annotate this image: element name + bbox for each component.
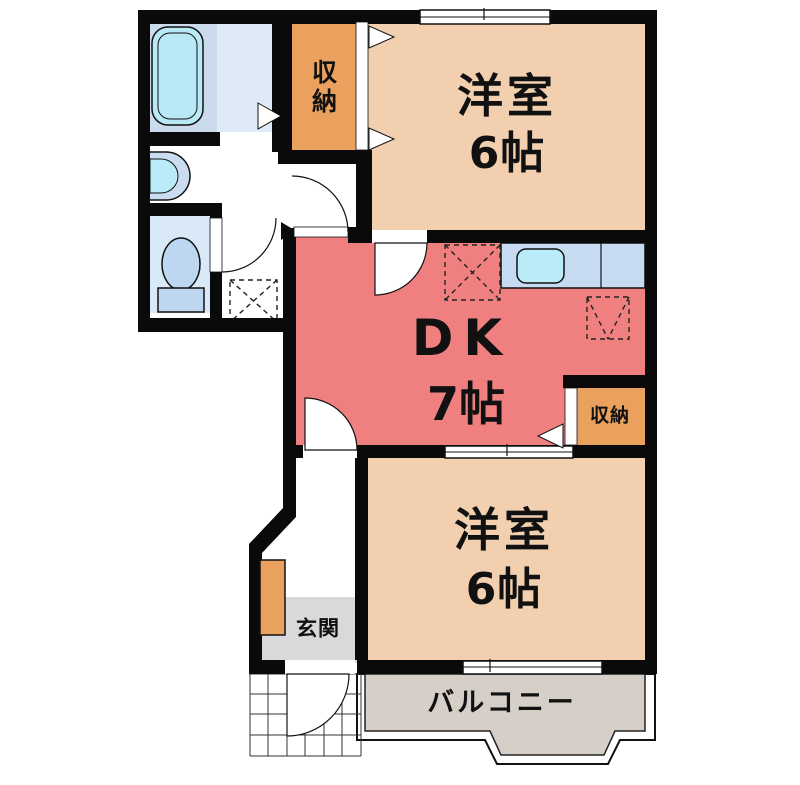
wall-washroom-toilet xyxy=(138,203,222,216)
dining-kitchen-area: 7帖 xyxy=(427,381,505,427)
kitchen-sink xyxy=(517,249,564,283)
western-room-bottom-area: 6帖 xyxy=(466,568,543,612)
sliding-door-dk xyxy=(445,444,573,458)
bathroom-door-opening xyxy=(220,132,272,146)
dining-kitchen-label: DK xyxy=(412,313,512,363)
toilet-tank xyxy=(158,288,204,312)
western-room-top-area: 6帖 xyxy=(469,132,546,176)
wall-closet-left xyxy=(272,20,292,152)
entrance-label: 玄関 xyxy=(296,619,340,640)
window-balcony xyxy=(463,659,602,674)
closet-top-door xyxy=(356,22,368,150)
floors xyxy=(149,22,645,663)
wall-block-bottom xyxy=(138,318,296,332)
window-top xyxy=(420,8,550,24)
wall-entrance-bottom xyxy=(249,660,285,674)
western-room-bottom-label: 洋室 xyxy=(454,507,554,553)
wall-dk-top-left xyxy=(348,227,372,243)
closet-side-door xyxy=(565,388,577,445)
western-top-door-opening xyxy=(372,230,427,243)
western-room-bottom-floor xyxy=(368,458,645,660)
floorplan: 洋室 6帖 DK 7帖 洋室 6帖 収納 収納 玄関 バルコニー xyxy=(0,0,800,785)
wall-closet-side-top xyxy=(563,375,645,388)
balcony-label: バルコニー xyxy=(427,690,576,717)
western-room-top-floor xyxy=(368,22,645,230)
hall-dk-door xyxy=(294,227,348,237)
wall-top xyxy=(138,10,657,24)
wall-bath-bottom xyxy=(138,132,220,146)
closet-top-label: 収納 xyxy=(311,59,336,117)
shoe-cabinet xyxy=(260,560,285,635)
wall-dk-left xyxy=(283,228,296,517)
bathtub xyxy=(152,27,203,125)
wall-corridor-right xyxy=(355,445,368,660)
laundry-space xyxy=(230,280,277,322)
toilet-door-arc xyxy=(222,218,276,272)
wall-left xyxy=(138,10,150,332)
washbasin-bowl xyxy=(150,159,178,193)
closet-side-label: 収納 xyxy=(590,407,630,426)
entrance-door-opening xyxy=(285,660,355,674)
floorplan-drawing xyxy=(0,0,800,785)
hall-dk-door-arc xyxy=(292,176,348,232)
wall-right xyxy=(645,10,657,674)
western-room-top-label: 洋室 xyxy=(457,73,557,119)
toilet-bowl xyxy=(162,238,200,290)
entrance-door-arc xyxy=(287,674,349,736)
wall-dk-top xyxy=(427,230,645,243)
toilet-door xyxy=(210,218,222,272)
